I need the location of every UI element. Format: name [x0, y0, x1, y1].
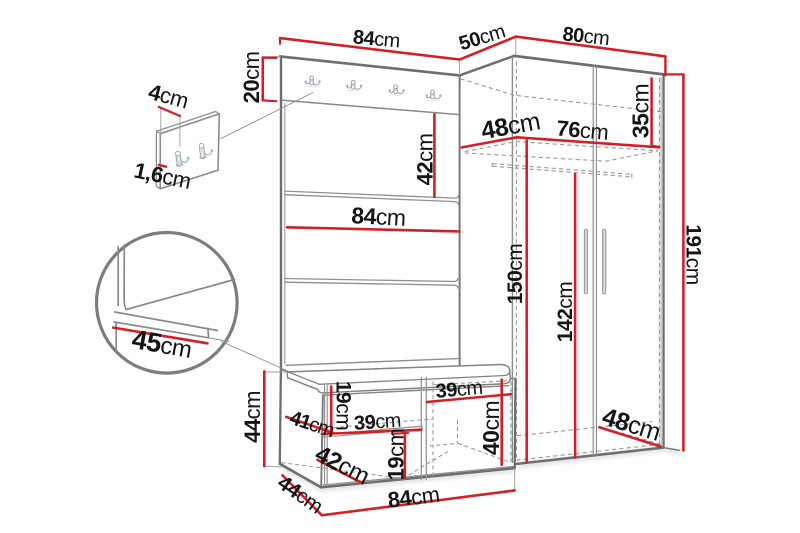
- svg-text:84cm: 84cm: [352, 26, 401, 52]
- svg-text:191cm: 191cm: [682, 224, 705, 285]
- svg-text:142cm: 142cm: [554, 282, 577, 343]
- svg-text:150cm: 150cm: [504, 244, 527, 305]
- svg-text:19cm: 19cm: [383, 429, 408, 481]
- svg-text:20cm: 20cm: [239, 52, 264, 104]
- svg-text:42cm: 42cm: [413, 134, 438, 186]
- svg-text:19cm: 19cm: [332, 381, 355, 430]
- svg-text:35cm: 35cm: [628, 84, 654, 138]
- svg-text:76cm: 76cm: [556, 115, 610, 144]
- svg-text:39cm: 39cm: [435, 377, 484, 403]
- svg-text:44cm: 44cm: [240, 391, 265, 443]
- svg-text:40cm: 40cm: [478, 401, 504, 455]
- svg-text:84cm: 84cm: [351, 202, 407, 231]
